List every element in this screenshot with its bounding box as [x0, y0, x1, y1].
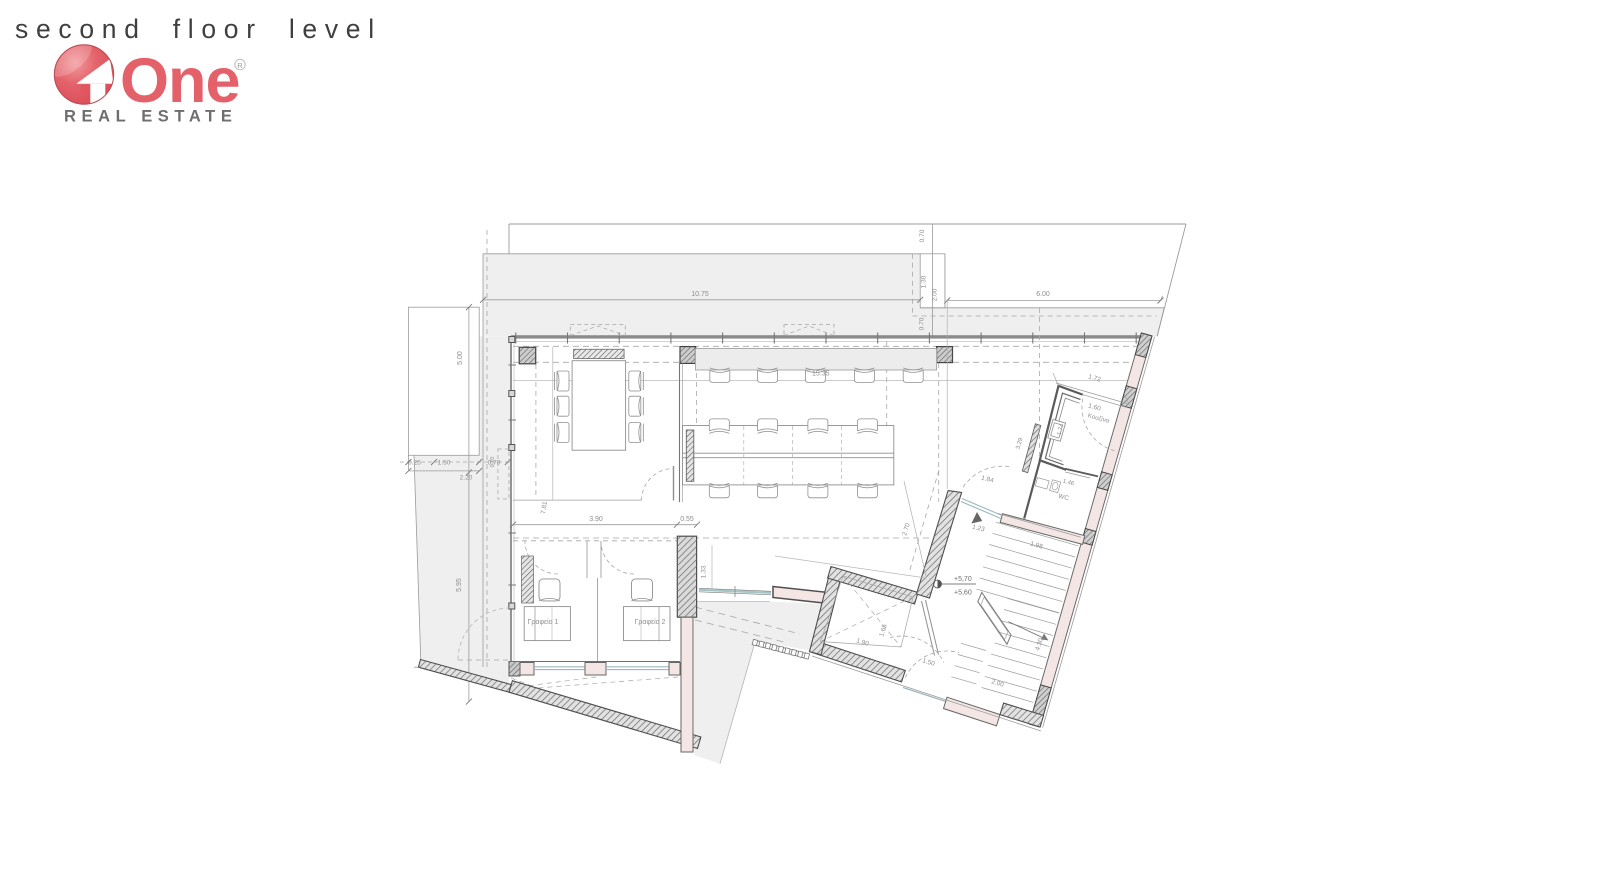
svg-text:Γραφείο 2: Γραφείο 2	[635, 618, 666, 626]
svg-text:R: R	[237, 61, 243, 70]
svg-text:0.70: 0.70	[919, 317, 926, 330]
svg-text:REAL ESTATE: REAL ESTATE	[64, 108, 237, 126]
svg-text:3.90: 3.90	[589, 516, 603, 523]
svg-text:1.33: 1.33	[701, 565, 708, 578]
svg-text:0.70: 0.70	[919, 229, 926, 242]
svg-text:2.20: 2.20	[460, 475, 473, 482]
svg-text:5.95: 5.95	[456, 578, 463, 592]
svg-text:Γραφείο 1: Γραφείο 1	[528, 618, 559, 626]
svg-text:15.35: 15.35	[812, 371, 830, 378]
svg-text:10.75: 10.75	[691, 291, 709, 298]
svg-text:0.55: 0.55	[680, 516, 694, 523]
svg-text:0.70: 0.70	[490, 457, 496, 468]
svg-text:+5,60: +5,60	[954, 590, 972, 597]
svg-text:1.50: 1.50	[438, 460, 451, 467]
svg-text:6.00: 6.00	[1036, 291, 1050, 298]
svg-text:+5,70: +5,70	[954, 576, 972, 583]
svg-text:1.30: 1.30	[921, 275, 928, 288]
svg-text:One: One	[120, 46, 240, 116]
svg-text:5.00: 5.00	[457, 351, 464, 365]
svg-text:second floor level: second floor level	[15, 14, 382, 44]
svg-text:2.00: 2.00	[932, 288, 939, 301]
